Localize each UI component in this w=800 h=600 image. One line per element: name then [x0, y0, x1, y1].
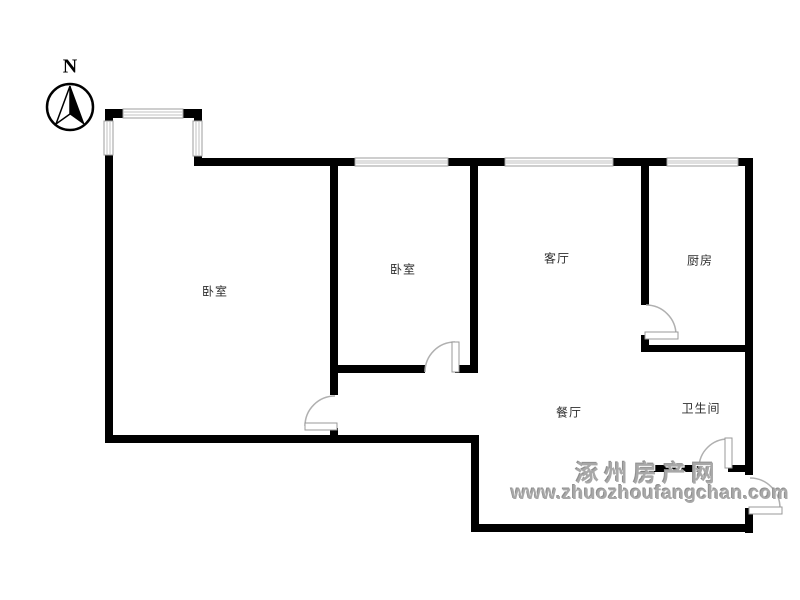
- wall: [613, 158, 667, 166]
- wall: [471, 524, 753, 532]
- compass-icon: [47, 84, 93, 130]
- room-label-kitchen: 厨房: [687, 252, 713, 269]
- window: [505, 158, 613, 166]
- wall: [641, 158, 649, 305]
- wall: [330, 158, 338, 395]
- room-label-bathroom: 卫生间: [681, 400, 720, 417]
- wall: [745, 158, 753, 475]
- wall: [641, 345, 753, 352]
- window: [667, 158, 738, 166]
- wall: [194, 109, 202, 122]
- window: [193, 121, 202, 156]
- wall: [330, 365, 425, 373]
- floor-plan-page: N 卧室 卧室 客厅 厨房 餐厅 卫生间 涿州房产网 www.zhuozhouf…: [0, 0, 800, 600]
- watermark-site-url: www.zhuozhoufangchan.com: [511, 483, 789, 505]
- room-label-dining: 餐厅: [556, 404, 582, 421]
- door-kitchen: [645, 305, 678, 339]
- wall: [105, 435, 479, 443]
- wall: [105, 109, 113, 122]
- floor-plan-drawing: [0, 0, 800, 600]
- compass-north-label: N: [63, 56, 77, 79]
- door-main-bedroom: [305, 396, 337, 430]
- wall: [470, 158, 478, 373]
- window: [355, 158, 448, 166]
- window: [123, 109, 183, 118]
- room-label-living: 客厅: [544, 250, 570, 267]
- room-label-bedroom-main: 卧室: [202, 283, 228, 300]
- door-second-bedroom: [425, 342, 459, 372]
- wall: [471, 435, 479, 532]
- wall: [105, 153, 113, 443]
- room-label-bedroom-second: 卧室: [390, 261, 416, 278]
- window: [104, 121, 113, 155]
